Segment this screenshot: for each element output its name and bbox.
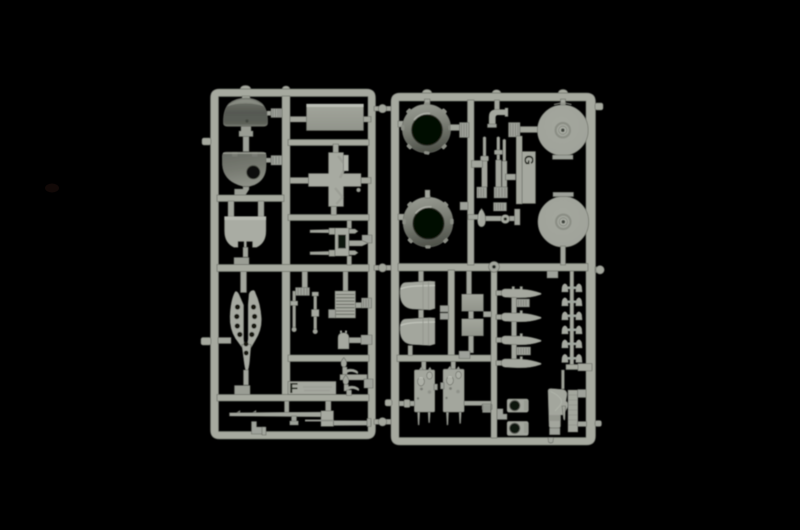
svg-text:G: G [522, 155, 536, 165]
svg-text:F: F [289, 381, 298, 397]
